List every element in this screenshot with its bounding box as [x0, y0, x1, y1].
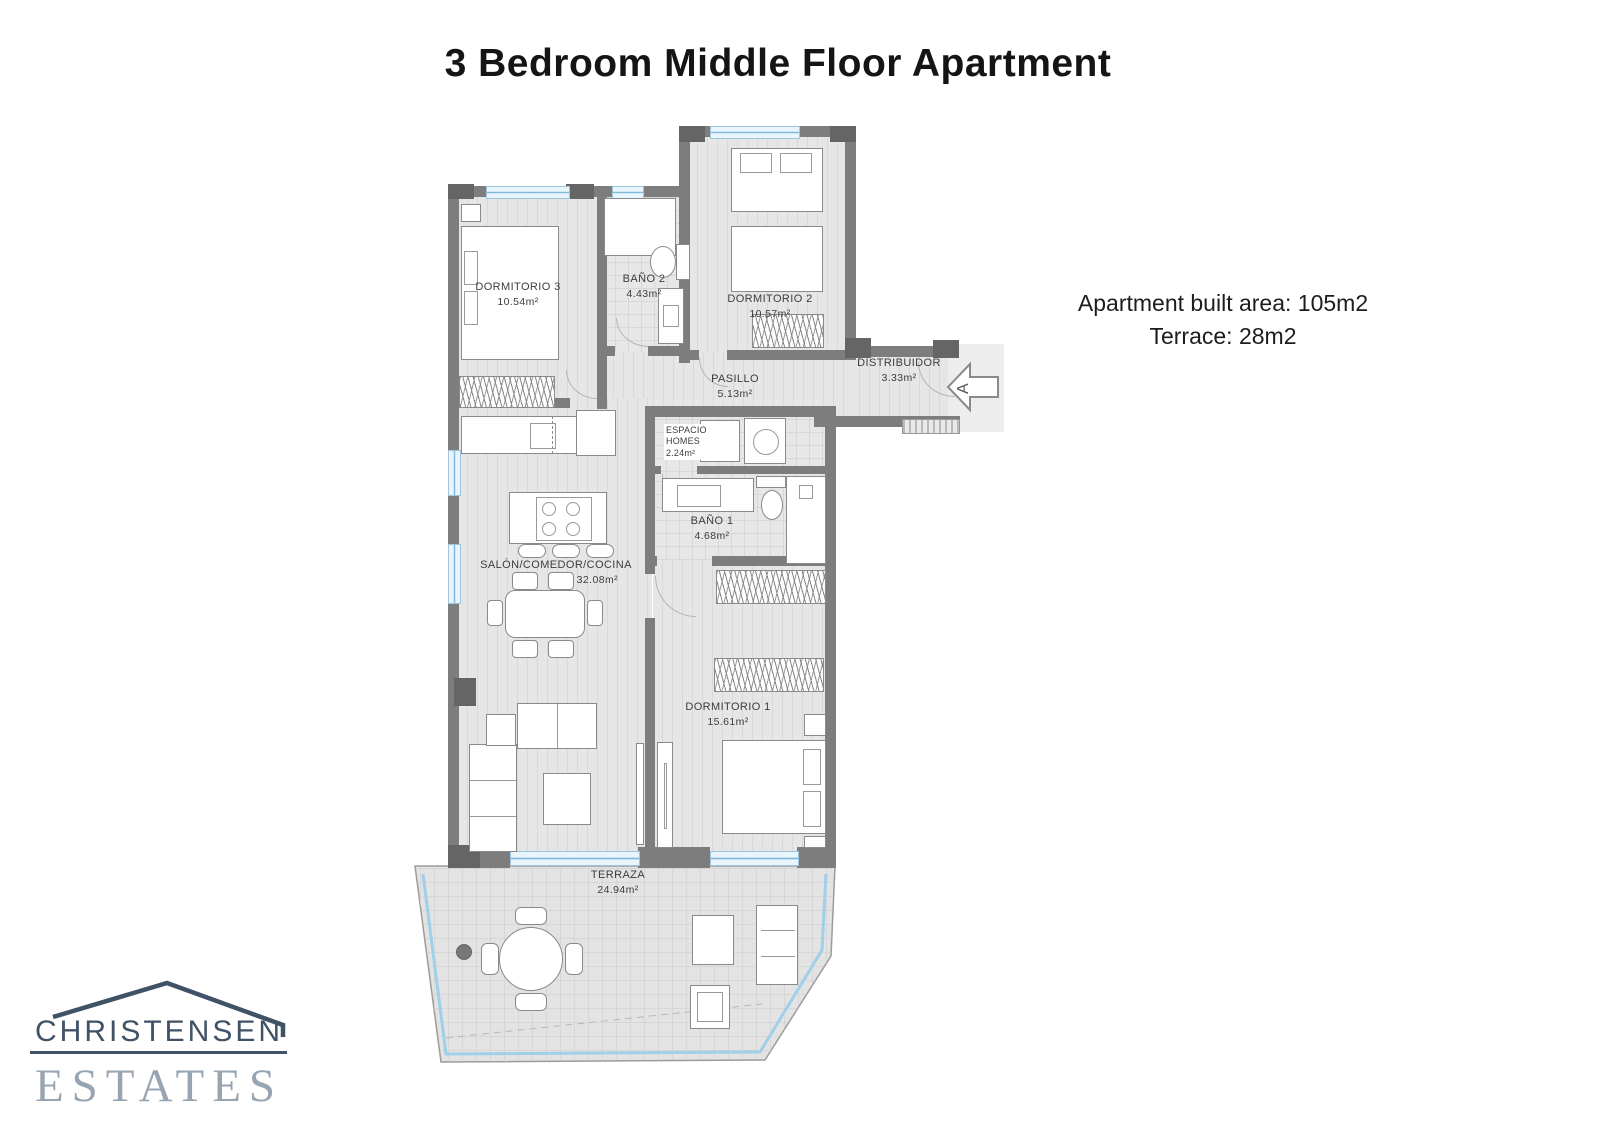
- window: [710, 126, 800, 139]
- cushion-line: [557, 704, 558, 748]
- pillow: [740, 153, 772, 173]
- room-label-salon: SALÓN/COMEDOR/COCINA 32.08m²: [468, 558, 644, 587]
- room-name: DORMITORIO 3: [452, 280, 584, 295]
- wall: [845, 126, 856, 360]
- room-name: TERRAZA: [568, 868, 668, 883]
- room-label-dormitorio2: DORMITORIO 2 10.57m²: [700, 292, 840, 321]
- washer-drum: [753, 429, 779, 455]
- dining-table: [505, 590, 585, 638]
- chair: [512, 640, 538, 658]
- tall-cabinet: [576, 410, 616, 456]
- kitchen-island: [509, 492, 607, 544]
- low-table-inner: [697, 992, 723, 1022]
- wardrobe: [459, 376, 555, 408]
- brand-logo: CHRISTENSEN ESTATES: [30, 975, 288, 1127]
- sliding-door-window: [510, 851, 640, 866]
- floor-plan: A DORMITORIO 3 10.54m² BAÑO 2 4.43m² DOR…: [0, 0, 1600, 1131]
- wall: [645, 618, 655, 858]
- room-area: 32.08m²: [468, 573, 644, 587]
- doormat: [902, 419, 960, 434]
- wall: [825, 406, 836, 868]
- room-area: 2.24m²: [666, 448, 716, 459]
- corner-post: [679, 126, 705, 142]
- pillow: [780, 153, 812, 173]
- room-name: SALÓN/COMEDOR/COCINA: [468, 558, 644, 573]
- wall: [645, 406, 836, 417]
- chair: [481, 943, 499, 975]
- bed: [722, 740, 826, 834]
- window: [448, 450, 461, 496]
- nightstand: [461, 204, 481, 222]
- burner: [566, 522, 580, 536]
- plant-icon: [456, 944, 472, 960]
- washing-machine-icon: [744, 418, 786, 464]
- sun-lounger: [756, 905, 798, 985]
- room-name: BAÑO 2: [604, 272, 684, 287]
- chair: [587, 600, 603, 626]
- sofa: [517, 703, 597, 749]
- brand-name: CHRISTENSEN: [30, 1015, 288, 1049]
- side-table: [692, 915, 734, 965]
- window: [486, 186, 570, 199]
- lounger-line: [761, 930, 795, 931]
- room-name: DORMITORIO 1: [648, 700, 808, 715]
- chair: [487, 600, 503, 626]
- room-name: DISTRIBUIDOR: [845, 356, 953, 371]
- room-label-distribuidor: DISTRIBUIDOR 3.33m²: [845, 356, 953, 385]
- room-name: PASILLO: [695, 372, 775, 387]
- basin: [677, 485, 721, 507]
- wall: [645, 406, 655, 574]
- chair: [515, 993, 547, 1011]
- room-area: 4.68m²: [666, 529, 758, 543]
- dresser-handle: [664, 763, 667, 829]
- wall: [697, 466, 836, 474]
- upper-cabinet-dashed: [461, 416, 553, 454]
- sofa: [469, 744, 517, 852]
- nightstand: [804, 836, 826, 848]
- corner-post: [845, 338, 871, 358]
- vanity-counter: [662, 478, 754, 512]
- cushion-line: [470, 816, 516, 817]
- pillar: [454, 678, 476, 706]
- dresser: [657, 742, 673, 848]
- corner-post: [448, 184, 474, 199]
- burner: [542, 522, 556, 536]
- room-label-espacio-homes: ESPACIO HOMES 2.24m²: [664, 424, 718, 460]
- stool: [552, 544, 580, 558]
- chair: [565, 943, 583, 975]
- chair: [515, 907, 547, 925]
- wall: [597, 346, 615, 356]
- brand-subname: ESTATES: [30, 1059, 288, 1113]
- low-table: [690, 985, 730, 1029]
- tv-unit: [636, 743, 644, 845]
- pillow: [803, 749, 821, 785]
- room-label-dormitorio3: DORMITORIO 3 10.54m²: [452, 280, 584, 309]
- shower-head: [799, 485, 813, 499]
- room-area: 10.54m²: [452, 295, 584, 309]
- wall: [645, 556, 657, 566]
- room-name: BAÑO 1: [666, 514, 758, 529]
- wall: [645, 466, 661, 474]
- bed: [731, 226, 823, 292]
- room-name: DORMITORIO 2: [700, 292, 840, 307]
- room-name: ESPACIO: [666, 425, 716, 436]
- room-label-bano2: BAÑO 2 4.43m²: [604, 272, 684, 301]
- room-area: 24.94m²: [568, 883, 668, 897]
- bed: [731, 148, 823, 212]
- wardrobe: [716, 570, 826, 604]
- entrance-arrow-letter: A: [955, 383, 972, 394]
- logo-divider: [30, 1051, 287, 1054]
- window: [448, 544, 461, 604]
- stool: [586, 544, 614, 558]
- room-area: 5.13m²: [695, 387, 775, 401]
- room-label-pasillo: PASILLO 5.13m²: [695, 372, 775, 401]
- basin: [663, 305, 679, 327]
- wall: [679, 350, 699, 360]
- pillow: [803, 791, 821, 827]
- room-label-terraza: TERRAZA 24.94m²: [568, 868, 668, 897]
- wall: [727, 350, 856, 360]
- lounger-line: [761, 956, 795, 957]
- room-area: 4.43m²: [604, 287, 684, 301]
- toilet-icon: [761, 490, 783, 520]
- wall: [797, 847, 836, 868]
- room-area: 3.33m²: [845, 371, 953, 385]
- armchair: [486, 714, 516, 746]
- cushion-line: [470, 780, 516, 781]
- room-area: 15.61m²: [648, 715, 808, 729]
- wall: [638, 847, 710, 868]
- terrace-table: [499, 927, 563, 991]
- burner: [566, 502, 580, 516]
- burner: [542, 502, 556, 516]
- page: 3 Bedroom Middle Floor Apartment Apartme…: [0, 0, 1600, 1131]
- toilet-cistern: [756, 476, 786, 488]
- room-label-dormitorio1: DORMITORIO 1 15.61m²: [648, 700, 808, 729]
- room-label-bano1: BAÑO 1 4.68m²: [666, 514, 758, 543]
- room-area: 10.57m²: [700, 307, 840, 321]
- corner-post: [830, 126, 856, 142]
- room-name: HOMES: [666, 436, 716, 447]
- chair: [548, 640, 574, 658]
- corner-post: [566, 184, 594, 199]
- stool: [518, 544, 546, 558]
- window: [710, 851, 799, 866]
- shower: [786, 476, 826, 564]
- coffee-table: [543, 773, 591, 825]
- wardrobe: [714, 658, 824, 692]
